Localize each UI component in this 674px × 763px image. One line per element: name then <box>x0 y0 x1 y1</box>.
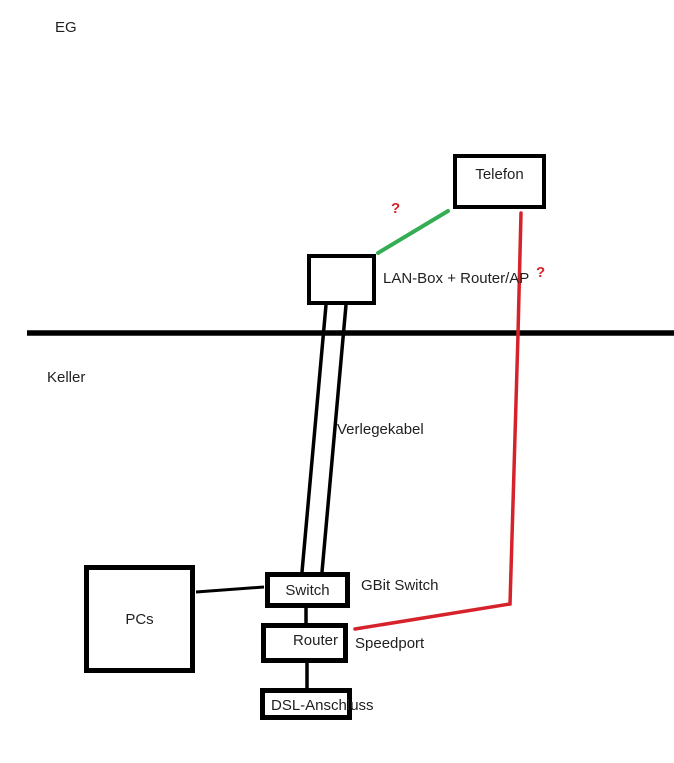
floor-label-keller: Keller <box>47 369 85 386</box>
node-lan-box-caption: LAN-Box + Router/AP <box>383 270 529 287</box>
network-diagram-canvas: EG Keller Telefon LAN-Box + Router/AP PC… <box>0 0 674 763</box>
pcs-switch-line <box>196 587 264 592</box>
node-telefon: Telefon <box>453 154 546 209</box>
floor-label-eg: EG <box>55 19 77 36</box>
verlegekabel-line-1 <box>302 305 326 572</box>
node-router-label: Router <box>293 632 338 649</box>
edge-label-verlegekabel: Verlegekabel <box>337 421 424 438</box>
node-pcs-label: PCs <box>125 611 153 628</box>
telefon-lanbox-line <box>378 211 448 253</box>
node-telefon-label: Telefon <box>475 166 523 183</box>
node-dsl-anschluss-label: DSL-Anschluss <box>271 697 374 714</box>
verlegekabel-line-2 <box>322 305 346 572</box>
node-dsl-anschluss: DSL-Anschluss <box>260 688 352 720</box>
edge-question-mark-red-link: ? <box>536 264 545 281</box>
node-pcs: PCs <box>84 565 195 673</box>
node-switch-caption: GBit Switch <box>361 577 439 594</box>
edge-question-mark-green-link: ? <box>391 200 400 217</box>
node-lan-box <box>307 254 376 305</box>
node-router: Router <box>261 623 348 663</box>
node-switch-label: Switch <box>285 582 329 599</box>
node-switch: Switch <box>265 572 350 608</box>
node-router-caption: Speedport <box>355 635 424 652</box>
